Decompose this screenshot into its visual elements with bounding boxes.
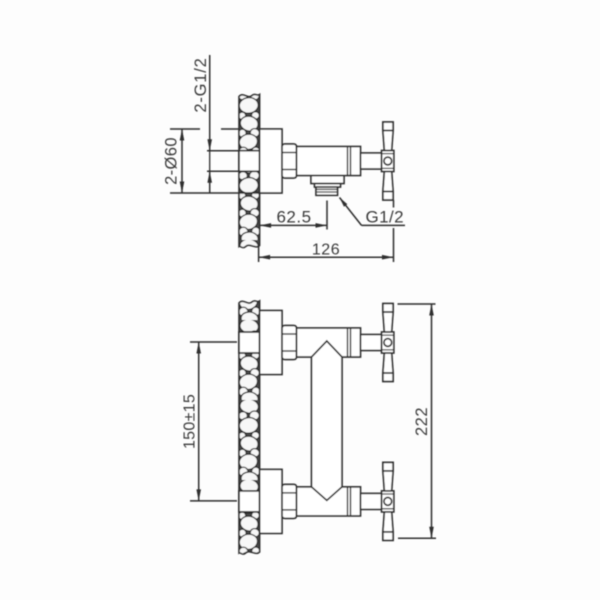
svg-text:62.5: 62.5	[276, 208, 311, 227]
svg-text:2-G1/2: 2-G1/2	[192, 57, 210, 112]
svg-text:2-Ø60: 2-Ø60	[163, 137, 181, 185]
svg-text:150±15: 150±15	[182, 394, 199, 449]
svg-text:G1/2: G1/2	[366, 208, 404, 227]
svg-text:222: 222	[413, 407, 431, 436]
svg-text:126: 126	[312, 241, 340, 258]
